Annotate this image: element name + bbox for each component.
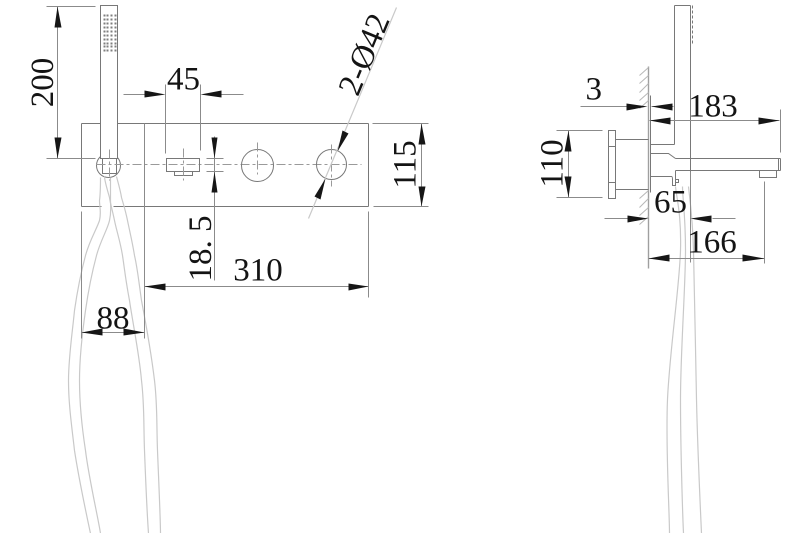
svg-text:200: 200 bbox=[25, 58, 61, 108]
svg-text:110: 110 bbox=[535, 139, 571, 187]
svg-text:183: 183 bbox=[688, 89, 738, 125]
svg-text:45: 45 bbox=[167, 62, 200, 98]
svg-text:88: 88 bbox=[97, 301, 130, 337]
svg-text:3: 3 bbox=[586, 72, 603, 108]
svg-text:18. 5: 18. 5 bbox=[183, 216, 219, 282]
svg-text:65: 65 bbox=[654, 185, 687, 221]
svg-text:310: 310 bbox=[233, 253, 283, 289]
svg-text:2-Ø42: 2-Ø42 bbox=[332, 9, 398, 101]
svg-text:166: 166 bbox=[687, 225, 737, 261]
svg-text:115: 115 bbox=[387, 140, 423, 188]
